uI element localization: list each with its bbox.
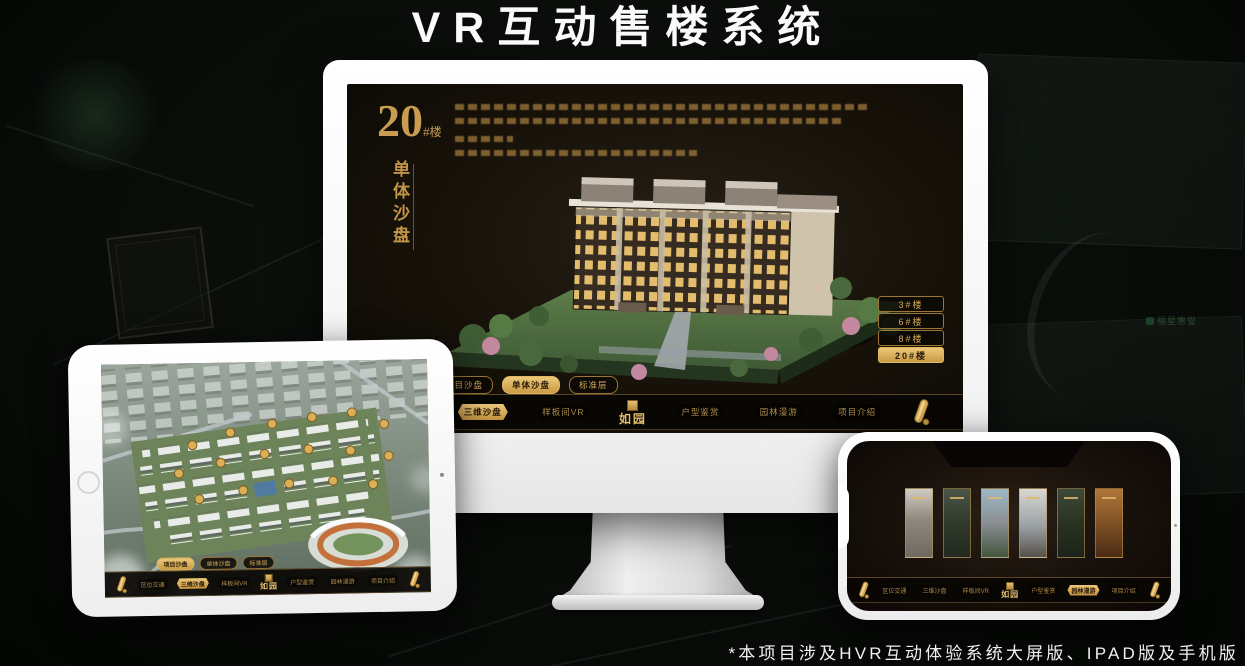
tablet-home-button[interactable] bbox=[77, 471, 100, 494]
gallery-panel[interactable] bbox=[905, 488, 933, 558]
gallery-panel[interactable] bbox=[1019, 488, 1047, 558]
nav-3d-sandbox[interactable]: 三维沙盘 bbox=[918, 585, 950, 596]
nav-unit-gallery[interactable]: 户型鉴赏 bbox=[675, 404, 725, 420]
scroll-handle-icon[interactable] bbox=[407, 569, 420, 589]
tablet-frame: 项目沙盘 单体沙盘 标准层 区位交通 三维沙盘 样板间VR 如园 户型鉴赏 园林… bbox=[68, 339, 458, 618]
monitor-base bbox=[552, 595, 764, 610]
nav-showroom-vr[interactable]: 样板间VR bbox=[217, 577, 252, 589]
floor-button-3[interactable]: 3#楼 bbox=[878, 296, 944, 312]
background-screenshot-collage bbox=[972, 53, 1245, 249]
app-logo-text: 如园 bbox=[1001, 591, 1019, 599]
nav-garden-roam[interactable]: 园林漫游 bbox=[1067, 585, 1099, 596]
app-logo: 如园 bbox=[619, 400, 647, 425]
poster-canvas: 福星惠誉 VR互动售楼系统 20#楼 单体沙盘 bbox=[0, 0, 1245, 666]
scroll-handle-icon[interactable] bbox=[911, 397, 931, 427]
phone-camera bbox=[1174, 524, 1177, 527]
background-developer-watermark: 福星惠誉 bbox=[1146, 314, 1197, 327]
heading-divider-line bbox=[413, 164, 414, 250]
building-number-unit: #楼 bbox=[423, 125, 442, 139]
nav-showroom-vr[interactable]: 样板间VR bbox=[536, 404, 590, 420]
scroll-handle-icon[interactable] bbox=[857, 580, 870, 600]
panel-label bbox=[950, 497, 964, 499]
nav-location-traffic[interactable]: 区位交通 bbox=[136, 578, 168, 590]
app-logo-text: 如园 bbox=[619, 413, 647, 425]
subtab-project-sandbox[interactable]: 项目沙盘 bbox=[156, 557, 194, 571]
footnote: *本项目涉及HVR互动体验系统大屏版、IPAD版及手机版 bbox=[728, 639, 1239, 664]
nav-showroom-vr[interactable]: 样板间VR bbox=[959, 585, 993, 596]
panel-label bbox=[1026, 497, 1040, 499]
nav-project-intro[interactable]: 项目介绍 bbox=[1108, 585, 1140, 596]
gallery-panel[interactable] bbox=[1095, 488, 1123, 558]
tablet-camera bbox=[440, 473, 444, 477]
nav-3d-sandbox[interactable]: 三维沙盘 bbox=[458, 404, 508, 420]
tablet-navbar: 区位交通 三维沙盘 样板间VR 如园 户型鉴赏 园林漫游 项目介绍 bbox=[105, 566, 431, 598]
phone-navbar: 区位交通 三维沙盘 样板间VR 如园 户型鉴赏 园林漫游 项目介绍 bbox=[847, 577, 1171, 603]
nav-project-intro[interactable]: 项目介绍 bbox=[367, 574, 399, 586]
building-heading: 20#楼 bbox=[377, 98, 442, 144]
app-logo-text: 如园 bbox=[260, 582, 278, 590]
phone-notch bbox=[838, 485, 849, 549]
building-render-illustration bbox=[439, 140, 919, 392]
background-map-green-patch bbox=[20, 60, 170, 170]
app-logo: 如园 bbox=[1001, 582, 1019, 599]
nav-garden-roam[interactable]: 园林漫游 bbox=[327, 575, 359, 587]
phone-frame: 区位交通 三维沙盘 样板间VR 如园 户型鉴赏 园林漫游 项目介绍 bbox=[838, 432, 1180, 620]
panel-label bbox=[912, 497, 926, 499]
sandbox-subtabs: 项目沙盘 单体沙盘 标准层 bbox=[435, 376, 618, 394]
monitor-stand bbox=[556, 511, 760, 599]
building-subtitle-vertical: 单体沙盘 bbox=[387, 160, 412, 248]
subtab-standard-floor[interactable]: 标准层 bbox=[569, 376, 618, 394]
subtab-single-sandbox[interactable]: 单体沙盘 bbox=[502, 376, 560, 394]
panel-label bbox=[988, 497, 1002, 499]
nav-3d-sandbox[interactable]: 三维沙盘 bbox=[177, 577, 209, 589]
nav-unit-gallery[interactable]: 户型鉴赏 bbox=[1027, 585, 1059, 596]
nav-project-intro[interactable]: 项目介绍 bbox=[832, 404, 882, 420]
background-river-shape bbox=[1011, 217, 1176, 413]
gallery-panel[interactable] bbox=[943, 488, 971, 558]
nav-unit-gallery[interactable]: 户型鉴赏 bbox=[286, 576, 318, 588]
subtab-single-sandbox[interactable]: 单体沙盘 bbox=[199, 556, 237, 570]
phone-screen: 区位交通 三维沙盘 样板间VR 如园 户型鉴赏 园林漫游 项目介绍 bbox=[847, 441, 1171, 611]
gallery-panel[interactable] bbox=[981, 488, 1009, 558]
description-line bbox=[455, 104, 870, 110]
seal-icon bbox=[265, 573, 273, 581]
panel-label bbox=[1102, 497, 1116, 499]
floor-button-6[interactable]: 6#楼 bbox=[878, 313, 944, 329]
developer-logo-text: 福星惠誉 bbox=[1157, 314, 1197, 327]
description-line bbox=[455, 118, 843, 124]
nav-location-traffic[interactable]: 区位交通 bbox=[878, 585, 910, 596]
app-logo: 如园 bbox=[260, 573, 278, 590]
page-title: VR互动售楼系统 bbox=[0, 0, 1245, 56]
seal-icon bbox=[1006, 582, 1014, 590]
background-road-line bbox=[6, 125, 254, 207]
floor-button-20[interactable]: 20#楼 bbox=[878, 347, 944, 363]
pavilion-roof-beam bbox=[933, 441, 1085, 467]
gallery-panel[interactable] bbox=[1057, 488, 1085, 558]
scroll-handle-icon[interactable] bbox=[1148, 580, 1161, 600]
building-number: 20 bbox=[377, 95, 423, 146]
developer-logo-icon bbox=[1146, 317, 1154, 325]
tablet-screen: 项目沙盘 单体沙盘 标准层 区位交通 三维沙盘 样板间VR 如园 户型鉴赏 园林… bbox=[101, 359, 431, 598]
scroll-handle-icon[interactable] bbox=[115, 574, 128, 594]
subtab-standard-floor[interactable]: 标准层 bbox=[242, 556, 274, 570]
floor-button-8[interactable]: 8#楼 bbox=[878, 330, 944, 346]
building-block bbox=[566, 177, 839, 318]
seal-icon bbox=[627, 400, 638, 411]
background-plaque bbox=[106, 227, 214, 340]
nav-garden-roam[interactable]: 园林漫游 bbox=[754, 404, 804, 420]
panel-label bbox=[1064, 497, 1078, 499]
